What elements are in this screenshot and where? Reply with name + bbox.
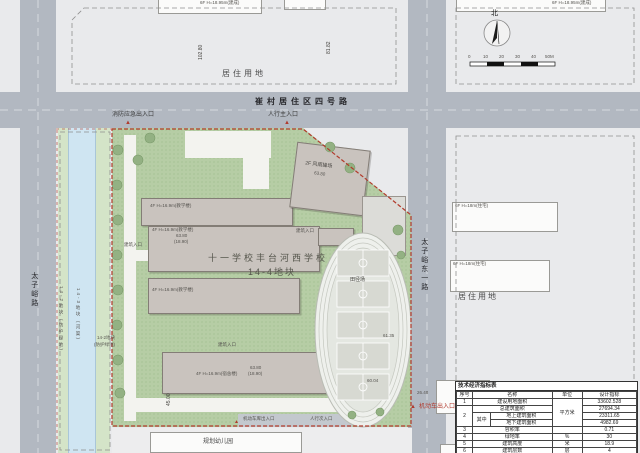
road-left [20, 0, 56, 453]
vehicle-entrance-label: 机动车出入口 [419, 404, 455, 411]
vehicle-entrance-marker: ▲ [410, 404, 416, 411]
main-entrance-marker: ▲ [284, 120, 290, 127]
teaching-b-height: (18.90) [174, 240, 188, 245]
kindergarten-label: 规划幼儿园 [203, 439, 233, 446]
scale-bar [470, 62, 555, 66]
canal-strip [68, 128, 96, 453]
table-row: 其中地上建筑面积 23311.65 [457, 413, 637, 420]
teaching-c-label: 4F H=16.9m(教学楼) [152, 288, 193, 293]
landuse-label-right: 居住用地 [458, 293, 498, 302]
table-row: 1建设用地面积 平方米33602.528 [457, 399, 637, 406]
technical-indicators-table: 技术经济指标表 序号名称 单位设计指标 1建设用地面积 平方米33602.528… [455, 381, 638, 453]
table-row: 3容积率 0.71 [457, 427, 637, 434]
dormitory-height: (18.90) [248, 372, 262, 377]
existing-building-note: 6F H=18.95m(建成) [200, 1, 239, 6]
road-name-right: 太子峪东一路 [420, 238, 428, 292]
dormitory-building [162, 352, 332, 394]
garage-entrance-marker: ▲ [234, 420, 239, 426]
dimension-c: 45.00 [167, 393, 173, 406]
secondary-entrance-label: 人行次入口 [310, 417, 333, 422]
building-entry-label: 建筑入口 [296, 229, 314, 234]
green-strip-label: 14-2地块（防护绿地） [58, 286, 63, 355]
teaching-a-label: 4F H=16.9m(教学楼) [150, 204, 191, 209]
table-title: 技术经济指标表 [456, 382, 637, 391]
table-row: 5建筑高度 米18.9 [457, 441, 637, 448]
field-elevation-1: 61.35 [383, 334, 394, 339]
main-entrance-label: 人行主入口 [268, 112, 298, 119]
site-plot-number: 14-4地块 [248, 268, 296, 278]
residential-building-note: 6F H=18m(住宅) [455, 204, 488, 209]
existing-building-note: 6F H=18.95m(建成) [552, 1, 591, 6]
scale-tick-30: 30 [515, 55, 520, 60]
canal-label: 14-3地块（河渠） [75, 288, 80, 344]
walkway [124, 398, 354, 412]
teaching-building-c [148, 278, 300, 314]
table-row: 2总建筑面积 27694.34 [457, 406, 637, 413]
service-block [362, 196, 406, 256]
building-entry-label: 建筑入口 [124, 243, 142, 248]
scale-tick-40: 40 [531, 55, 536, 60]
dimension-a: 102.80 [199, 45, 205, 60]
table-row: 6建筑层数 层4 [457, 448, 637, 453]
site-plan-canvas: 崔村居住区四号路 太子峪路 太子峪东一路 居住用地 居住用地 14-3地块（河渠… [0, 0, 640, 453]
teaching-b-label: 4F H=16.9m(教学楼) [152, 228, 193, 233]
gymnasium-building [289, 142, 370, 217]
site-title: 十一学校丰台河西学校 [208, 254, 328, 264]
garage-entrance-label: 机动车库出入口 [243, 417, 275, 422]
existing-building-outline [284, 0, 326, 10]
landuse-label-top: 居住用地 [222, 70, 266, 79]
field-elevation-2: 60.04 [367, 379, 378, 384]
green-parcel-label-1: 14-2地块 [97, 336, 115, 341]
athletics-field-label: 田径场 [350, 278, 365, 284]
scale-tick-20: 20 [499, 55, 504, 60]
scale-tick-0: 0 [468, 55, 471, 60]
north-label: 北 [491, 10, 498, 18]
scale-tick-10: 10 [483, 55, 488, 60]
residential-building-note: 6F H=18m(住宅) [453, 262, 486, 267]
road-name-top: 崔村居住区四号路 [255, 98, 351, 107]
green-parcel-label-2: (防护绿地) [94, 343, 115, 348]
dimension-d: 26.48 [417, 391, 428, 396]
walkway [124, 135, 136, 421]
table-row: 4绿地率 %30 [457, 434, 637, 441]
walkway [243, 131, 269, 189]
fire-exit-label: 消防应急出入口 [112, 112, 154, 119]
table-header-row: 序号名称 单位设计指标 [457, 392, 637, 399]
road-name-left: 太子峪路 [30, 272, 38, 308]
dormitory-label: 4F H=16.9m(宿舍楼) [196, 372, 237, 377]
north-arrow [484, 20, 510, 46]
connector-building [318, 228, 354, 246]
dimension-b: 81.82 [327, 41, 333, 54]
building-entry-label: 建筑入口 [218, 343, 236, 348]
fire-exit-marker: ▲ [125, 120, 131, 127]
scale-tick-50: 50M [545, 55, 554, 60]
